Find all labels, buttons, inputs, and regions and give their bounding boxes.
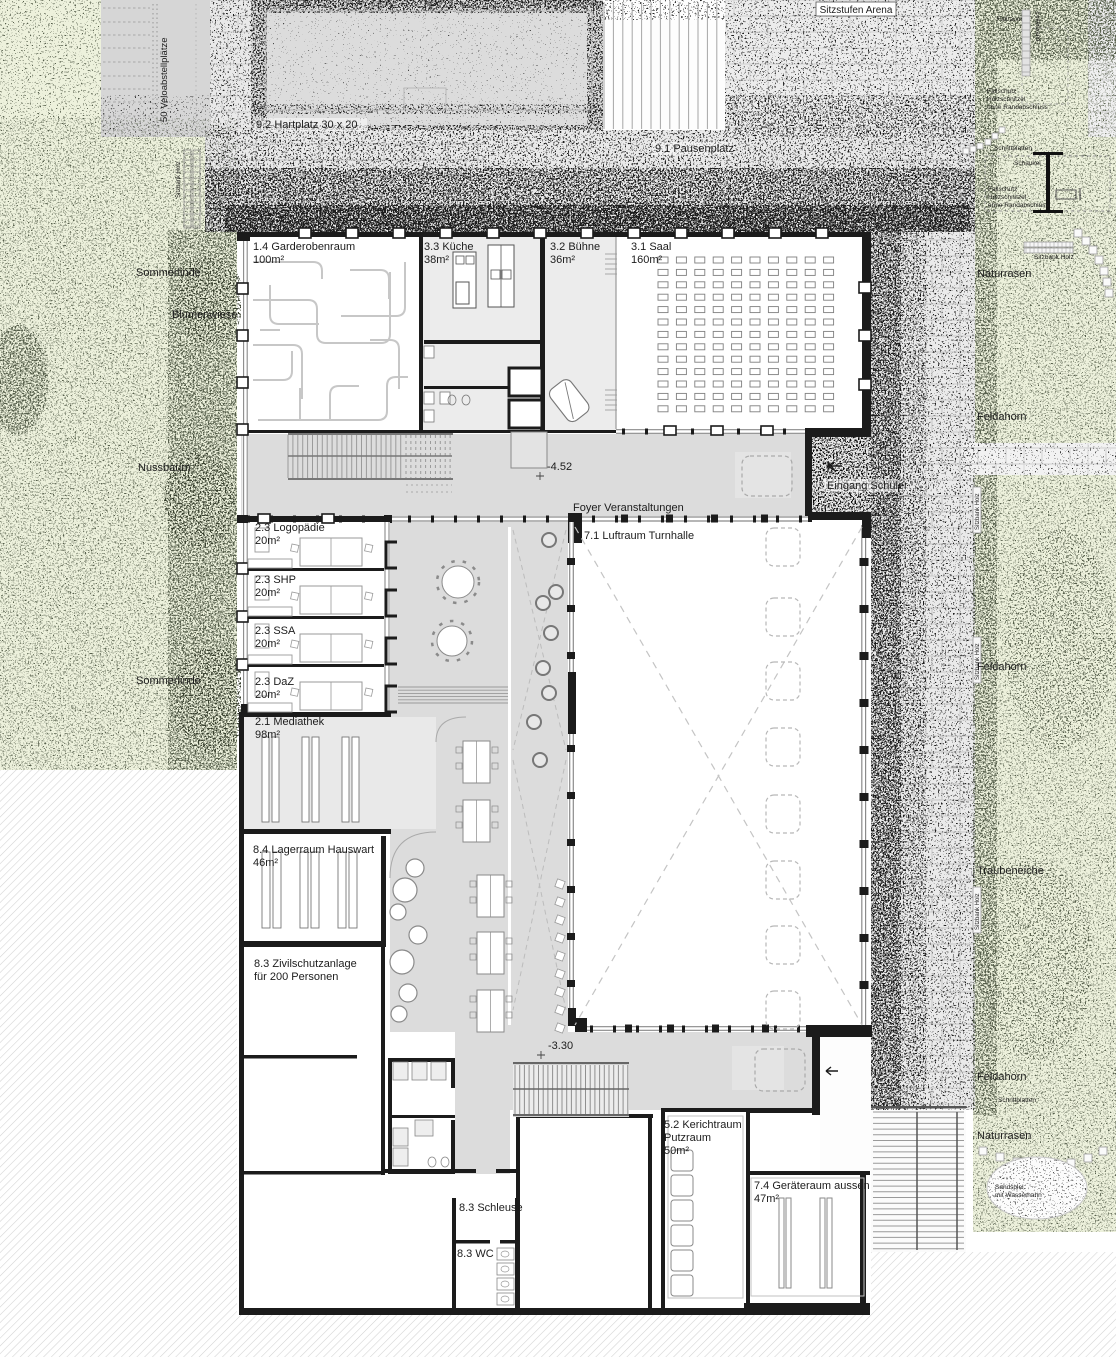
- svg-text:160m²: 160m²: [631, 254, 663, 266]
- svg-text:20m²: 20m²: [255, 587, 280, 599]
- svg-text:Fallraum: Fallraum: [997, 16, 1022, 23]
- svg-text:Naturrasen: Naturrasen: [977, 1130, 1031, 1142]
- svg-text:Feldahorn: Feldahorn: [977, 411, 1027, 423]
- svg-text:mit Wasserhahn: mit Wasserhahn: [995, 1192, 1042, 1199]
- svg-text:Sitzbank Holz: Sitzbank Holz: [1034, 254, 1074, 261]
- svg-text:Leiterwand: Leiterwand: [1034, 12, 1040, 41]
- svg-text:Schrittplatten: Schrittplatten: [994, 145, 1032, 152]
- svg-text:2.3 DaZ: 2.3 DaZ: [255, 676, 294, 688]
- svg-text:20m²: 20m²: [255, 689, 280, 701]
- svg-text:Schrittplatten: Schrittplatten: [998, 1097, 1036, 1104]
- svg-text:100m²: 100m²: [253, 254, 285, 266]
- svg-text:Sitzbank Holz: Sitzbank Holz: [176, 161, 182, 198]
- svg-text:Blumenwiese: Blumenwiese: [172, 309, 237, 321]
- svg-text:Fallschutz: Fallschutz: [987, 88, 1016, 95]
- svg-text:3.2 Bühne: 3.2 Bühne: [550, 241, 600, 253]
- svg-text:Foyer Veranstaltungen: Foyer Veranstaltungen: [573, 502, 684, 514]
- svg-text:3.3 Küche: 3.3 Küche: [424, 241, 474, 253]
- svg-text:ohne Randabschluss: ohne Randabschluss: [987, 104, 1048, 111]
- svg-text:Feldahorn: Feldahorn: [977, 661, 1027, 673]
- svg-text:2.1 Mediathek: 2.1 Mediathek: [255, 716, 325, 728]
- svg-text:Sitzstufen Arena: Sitzstufen Arena: [820, 5, 893, 16]
- svg-text:98m²: 98m²: [255, 729, 280, 741]
- svg-text:ohne Randabschluss: ohne Randabschluss: [988, 202, 1049, 209]
- svg-text:für 200 Personen: für 200 Personen: [254, 971, 338, 983]
- svg-text:36m²: 36m²: [550, 254, 575, 266]
- svg-text:8.3 Zivilschutzanlage: 8.3 Zivilschutzanlage: [254, 958, 357, 970]
- svg-text:38m²: 38m²: [424, 254, 449, 266]
- svg-text:Traubeneiche: Traubeneiche: [977, 865, 1044, 877]
- svg-text:1.4 Garderobenraum: 1.4 Garderobenraum: [253, 241, 355, 253]
- svg-text:2.3 SHP: 2.3 SHP: [255, 574, 296, 586]
- svg-text:7.4 Geräteraum aussen: 7.4 Geräteraum aussen: [754, 1180, 870, 1192]
- svg-text:8.3 WC: 8.3 WC: [457, 1248, 494, 1260]
- svg-text:50 Veloabstellplätze: 50 Veloabstellplätze: [159, 37, 170, 122]
- svg-text:Nussbaum: Nussbaum: [138, 462, 191, 474]
- svg-text:Sommerlinde: Sommerlinde: [136, 267, 201, 279]
- svg-text:20m²: 20m²: [255, 535, 280, 547]
- svg-text:Holzschnitzel: Holzschnitzel: [988, 194, 1027, 201]
- svg-text:9.2 Hartplatz 30 x 20: 9.2 Hartplatz 30 x 20: [256, 119, 358, 131]
- svg-text:Sitzbank Holz: Sitzbank Holz: [975, 893, 981, 930]
- svg-text:Feldahorn: Feldahorn: [977, 1071, 1027, 1083]
- svg-text:2.3 Logopädie: 2.3 Logopädie: [255, 522, 325, 534]
- svg-text:2.3 SSA: 2.3 SSA: [255, 625, 296, 637]
- svg-text:8.4 Lagerraum Hauswart: 8.4 Lagerraum Hauswart: [253, 844, 374, 856]
- svg-text:20m²: 20m²: [255, 638, 280, 650]
- svg-text:5.2 Kerichtraum: 5.2 Kerichtraum: [664, 1119, 742, 1131]
- svg-text:9.1 Pausenplatz: 9.1 Pausenplatz: [655, 143, 734, 155]
- svg-text:Naturrasen: Naturrasen: [977, 268, 1031, 280]
- svg-text:Fallschutz: Fallschutz: [988, 186, 1017, 193]
- svg-text:Holzschnitzel: Holzschnitzel: [987, 96, 1026, 103]
- svg-text:Sitzbank Holz: Sitzbank Holz: [975, 643, 981, 680]
- svg-text:-3.30: -3.30: [548, 1040, 573, 1052]
- svg-text:-4.52: -4.52: [547, 461, 572, 473]
- svg-text:50m²: 50m²: [664, 1145, 689, 1157]
- svg-text:7.1 Luftraum Turnhalle: 7.1 Luftraum Turnhalle: [584, 530, 694, 542]
- svg-text:Sitzbank Holz: Sitzbank Holz: [975, 493, 981, 530]
- svg-text:Sommerlinde: Sommerlinde: [136, 675, 201, 687]
- svg-text:Sandspiel: Sandspiel: [995, 1184, 1024, 1191]
- svg-text:Schaukel: Schaukel: [1014, 160, 1041, 167]
- svg-text:3.1 Saal: 3.1 Saal: [631, 241, 671, 253]
- svg-text:47m²: 47m²: [754, 1193, 779, 1205]
- svg-text:Putzraum: Putzraum: [664, 1132, 711, 1144]
- svg-text:Eingang Schüler: Eingang Schüler: [827, 480, 908, 492]
- svg-text:46m²: 46m²: [253, 857, 278, 869]
- svg-text:8.3 Schleuse: 8.3 Schleuse: [459, 1202, 523, 1214]
